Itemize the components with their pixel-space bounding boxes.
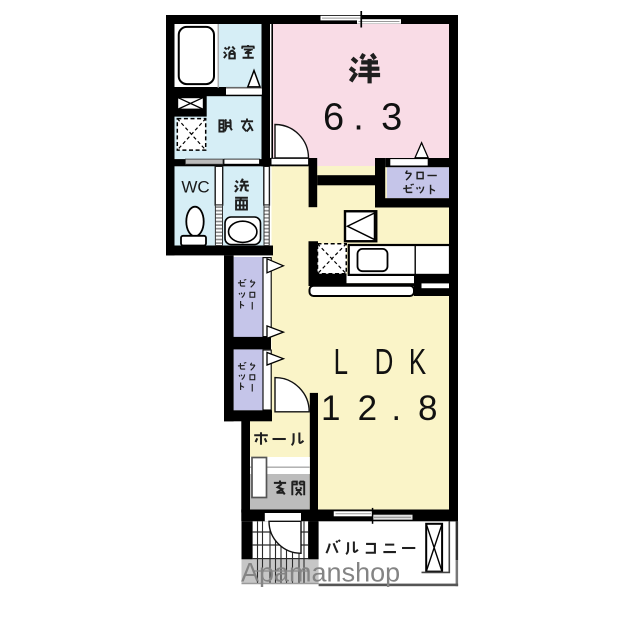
svg-text:3: 3 [381,97,402,139]
svg-text:WC: WC [181,178,209,197]
svg-text:1: 1 [321,389,340,428]
svg-text:K: K [409,342,426,382]
svg-text:2: 2 [358,389,377,428]
svg-text:D: D [375,342,394,382]
svg-text:8: 8 [418,389,437,428]
svg-text:.: . [353,97,364,139]
svg-text:Apamanshop: Apamanshop [241,558,400,588]
svg-text:L: L [334,342,348,382]
svg-text:.: . [391,389,401,428]
svg-text:6: 6 [323,97,344,139]
